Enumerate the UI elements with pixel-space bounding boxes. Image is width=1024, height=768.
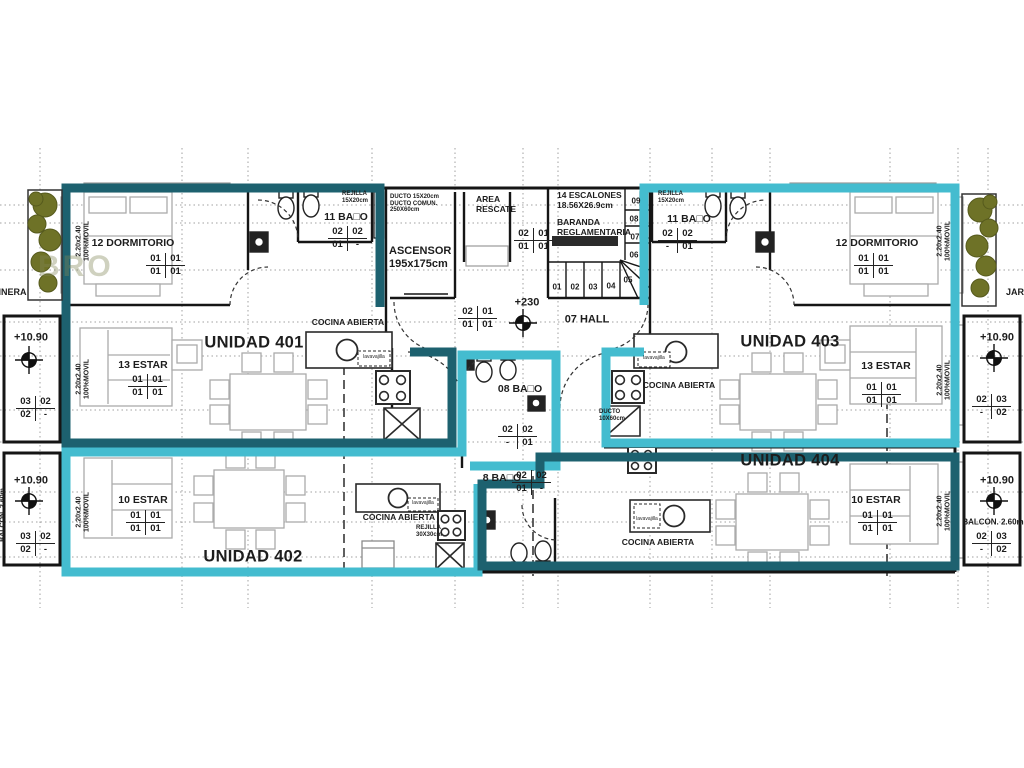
- ascensor-label: ASCENSOR 195x175cm: [389, 245, 451, 270]
- room-label-estar-404: 10 ESTAR: [851, 494, 900, 506]
- movil-note-404-estar: 2.20x2.40100%MOVIL: [937, 491, 952, 531]
- movil-note-401-dorm: 2.20x2.40100%MOVIL: [76, 221, 91, 261]
- room-label-estar-403: 13 ESTAR: [861, 360, 910, 372]
- room-label-cocina-404: COCINA ABIERTA: [622, 538, 694, 548]
- ducto-note-cocina-403: DUCTO10X60cm: [599, 409, 625, 422]
- toilets-bath-08-upper: [461, 352, 545, 411]
- lavavajilla-label-403: lavavajilla: [643, 356, 665, 362]
- lavavajilla-label-402: lavavajilla: [412, 501, 434, 507]
- room-label-cocina-403: COCINA ABIERTA: [643, 381, 715, 391]
- jardinera-right: [962, 194, 998, 306]
- ducto-note-ascensor: DUCTO 15X20cmDUCTO COMUN.250X60cm: [390, 194, 439, 214]
- stair-step-number: 01: [553, 283, 562, 292]
- level-marker-402-estar: 01010101: [126, 510, 165, 535]
- room-label-estar-401: 13 ESTAR: [118, 359, 167, 371]
- level-crosshair-balcony-rl: [980, 487, 1008, 515]
- movil-note-403-dorm: 2.20x2.40100%MOVIL: [937, 221, 952, 261]
- jardinera-label-left: JARDINERA: [0, 287, 27, 297]
- room-label-bano11-403: 11 BA□O: [667, 213, 711, 225]
- level-marker-403-estar: 01010101: [862, 382, 901, 407]
- level-marker-hall-upper: 02010101: [514, 228, 553, 253]
- movil-note-401-estar: 2.20x2.40100%MOVIL: [76, 359, 91, 399]
- room-label-estar-402: 10 ESTAR: [118, 494, 167, 506]
- room-label-hall: 07 HALL: [565, 314, 610, 327]
- rejilla-note-bath-403: REJILLA15X20cm: [658, 191, 684, 204]
- balcony-level-lu: +10.90: [14, 332, 48, 345]
- rejilla-note-cocina-402: REJILLA30X30cm: [416, 525, 442, 538]
- stair-step-number: 09: [632, 197, 641, 206]
- level-crosshair-balcony-ru: [980, 344, 1008, 372]
- stair-step-number: 07: [631, 233, 640, 242]
- level-marker-403-bano11: 0202-01: [658, 228, 697, 253]
- level-marker-bano08-lower: 020201-: [512, 470, 551, 495]
- balcony-level-rl: +10.90: [980, 475, 1014, 488]
- room-label-bano08-upper: 08 BA□O: [498, 383, 542, 395]
- level-marker-401-estar: 01010101: [128, 374, 167, 399]
- balcon-area-label-right: BALCON. 2.60m: [962, 517, 1023, 526]
- stair-step-number: 05: [624, 276, 633, 285]
- movil-note-403-estar: 2.20x2.40100%MOVIL: [937, 360, 952, 400]
- dining-402: [194, 449, 305, 549]
- baranda-label: BARANDA REGLAMENTARIA: [557, 218, 631, 238]
- hall-level-value: +230: [515, 297, 540, 310]
- rejilla-note-bath-401: REJILLA15X20cm: [342, 191, 368, 204]
- level-marker-404-estar: 01010101: [858, 510, 897, 535]
- level-crosshair-balcony-lu: [15, 346, 43, 374]
- level-marker-balcony-rl: 0203-02: [972, 531, 1011, 556]
- jardinera-label-right: JARDINERA: [1006, 287, 1024, 297]
- room-label-dormitorio-401: 12 DORMITORIO: [92, 237, 175, 249]
- level-marker-balcony-lu: 030202-: [16, 396, 55, 421]
- lavavajilla-label-401: lavavajilla: [363, 355, 385, 361]
- room-label-cocina-402: COCINA ABIERTA: [363, 513, 435, 523]
- stair-step-number: 06: [630, 251, 639, 260]
- stair-step-number: 04: [607, 282, 616, 291]
- level-marker-401-dorm: 01010101: [146, 253, 185, 278]
- floorplan-page: BRO UNIDAD 401 UNIDAD 402 UNIDAD 403 UNI…: [0, 0, 1024, 768]
- level-marker-balcony-ru: 0203-02: [972, 394, 1011, 419]
- room-label-dormitorio-403: 12 DORMITORIO: [836, 237, 919, 249]
- balcony-level-ru: +10.90: [980, 332, 1014, 345]
- dining-404: [716, 473, 829, 571]
- unit-402-title: UNIDAD 402: [203, 548, 302, 567]
- escalones-label: 14 ESCALONES 18.56X26.9cm: [557, 191, 622, 211]
- level-marker-balcony-ll: 030202-: [16, 531, 55, 556]
- toilets-bath-08-lower: [479, 511, 551, 569]
- balcony-level-ll: +10.90: [14, 475, 48, 488]
- room-label-bano11-401: 11 BA□O: [324, 211, 368, 223]
- unit-403-title: UNIDAD 403: [740, 333, 839, 352]
- armchair-401: [172, 340, 202, 370]
- balcon-area-label-left: BALCON. 2.60m: [0, 488, 7, 542]
- level-crosshair-hall: [509, 309, 537, 337]
- unit-404-title: UNIDAD 404: [740, 452, 839, 471]
- stair-step-number: 02: [571, 283, 580, 292]
- level-crosshair-balcony-ll: [15, 487, 43, 515]
- level-marker-401-bano11: 020201-: [328, 226, 367, 251]
- unit-401-title: UNIDAD 401: [204, 334, 303, 353]
- level-marker-bano08-upper: 0202-01: [498, 424, 537, 449]
- stair-step-number: 03: [589, 283, 598, 292]
- stair-step-number: 08: [630, 215, 639, 224]
- level-marker-403-dorm: 01010101: [854, 253, 893, 278]
- movil-note-402-estar: 2.20x2.40100%MOVIL: [76, 492, 91, 532]
- level-marker-hall-lower: 02010101: [458, 306, 497, 331]
- area-rescate-label: AREA RESCATE: [476, 195, 516, 215]
- fridge-402: [362, 541, 394, 568]
- lavavajilla-label-404: lavavajilla: [636, 517, 658, 523]
- room-label-cocina-401: COCINA ABIERTA: [312, 318, 384, 328]
